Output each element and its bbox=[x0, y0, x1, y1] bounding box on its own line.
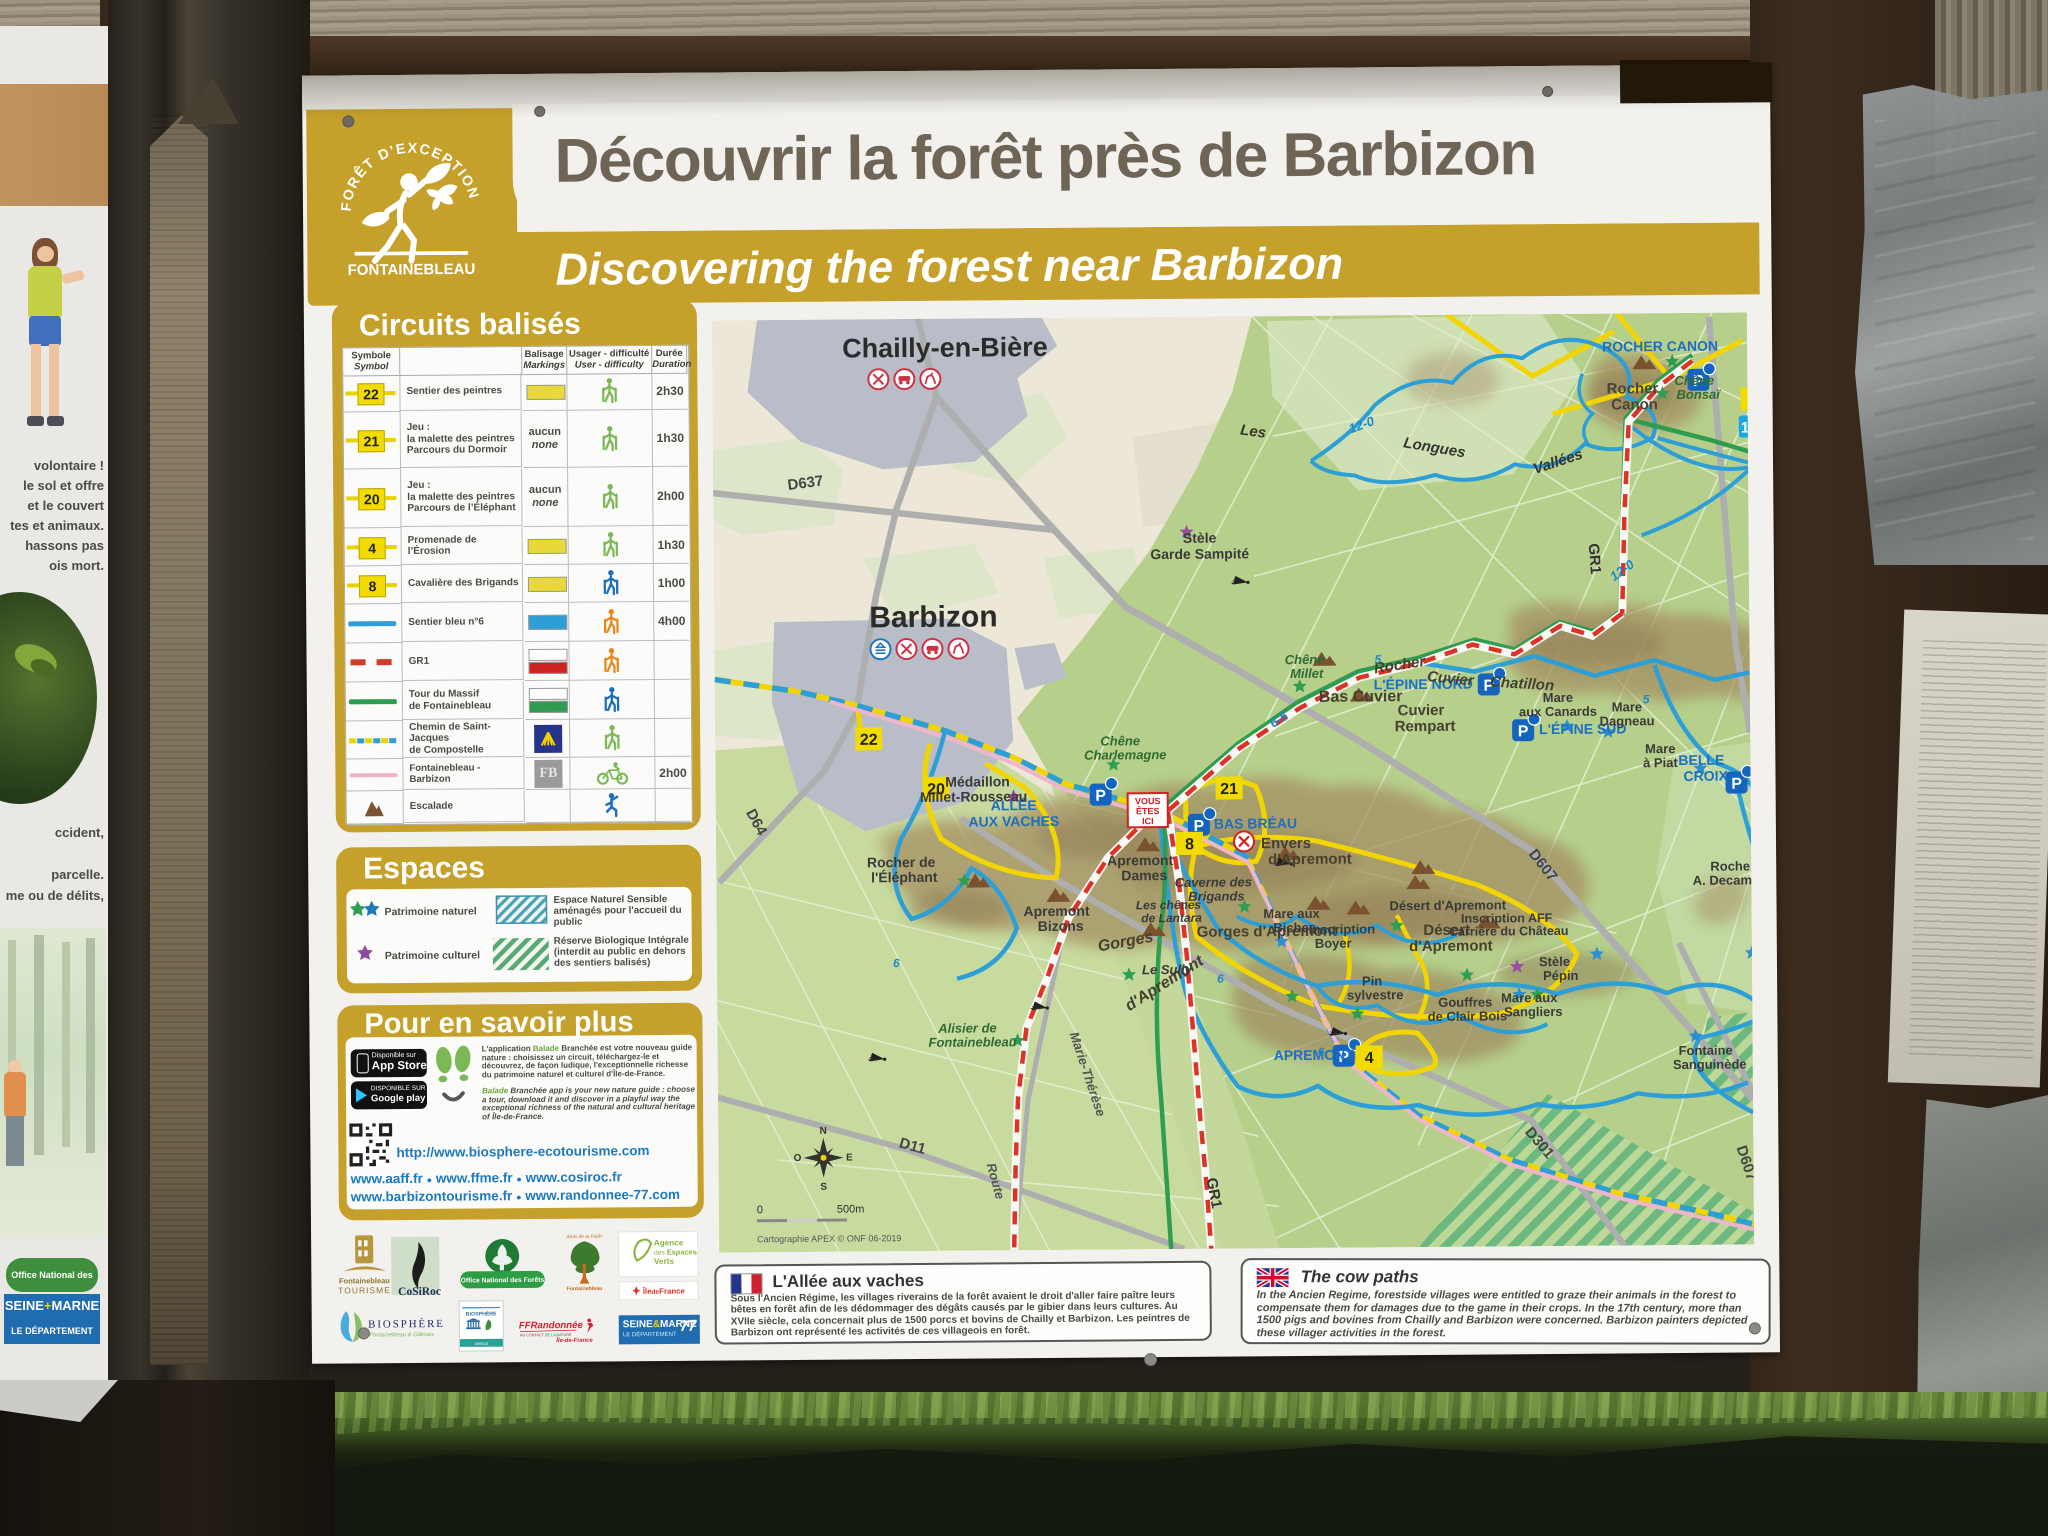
svg-text:22: 22 bbox=[860, 732, 878, 749]
svg-text:5: 5 bbox=[1375, 652, 1382, 666]
svg-text:VOUS: VOUS bbox=[1135, 796, 1161, 806]
svg-text:3: 3 bbox=[1750, 392, 1755, 409]
svg-text:Millet-Rousseau: Millet-Rousseau bbox=[920, 788, 1027, 805]
svg-text:Apremont: Apremont bbox=[1107, 852, 1174, 869]
svg-text:Le Sully: Le Sully bbox=[1142, 962, 1193, 977]
svg-text:Île-de-France: Île-de-France bbox=[556, 1337, 593, 1344]
svg-text:l'Éléphant: l'Éléphant bbox=[871, 869, 938, 886]
svg-text:S: S bbox=[820, 1182, 827, 1193]
svg-text:21: 21 bbox=[1220, 781, 1238, 798]
svg-text:TOURISME: TOURISME bbox=[338, 1285, 391, 1295]
svg-text:Garde Sampité: Garde Sampité bbox=[1150, 545, 1249, 562]
svg-text:CoSiRoc: CoSiRoc bbox=[398, 1286, 441, 1298]
svg-text:Boyer: Boyer bbox=[1315, 936, 1352, 951]
svg-text:0: 0 bbox=[757, 1204, 763, 1216]
svg-text:aux Canards: aux Canards bbox=[1519, 704, 1597, 720]
svg-text:N: N bbox=[820, 1126, 827, 1137]
svg-text:Amis de la Forêt: Amis de la Forêt bbox=[565, 1234, 602, 1240]
svg-text:Envers: Envers bbox=[1261, 835, 1311, 852]
svg-text:Bonsaï: Bonsaï bbox=[1676, 387, 1721, 402]
svg-text:Agence: Agence bbox=[654, 1238, 684, 1247]
svg-text:Carrière du Château: Carrière du Château bbox=[1449, 924, 1569, 939]
svg-text:BIOSPHÈRE: BIOSPHÈRE bbox=[368, 1318, 445, 1331]
svg-text:Chêne: Chêne bbox=[1285, 652, 1325, 667]
svg-text:O: O bbox=[794, 1153, 802, 1164]
svg-text:5: 5 bbox=[1643, 692, 1650, 706]
svg-text:AU CONTACT DE LA NATURE: AU CONTACT DE LA NATURE bbox=[520, 1333, 572, 1337]
svg-text:6: 6 bbox=[893, 956, 900, 970]
svg-text:Les: Les bbox=[1239, 422, 1267, 442]
svg-text:GR1: GR1 bbox=[1585, 543, 1604, 575]
svg-text:Médaillon: Médaillon bbox=[945, 773, 1010, 790]
svg-text:ÎledeFrance: ÎledeFrance bbox=[642, 1287, 686, 1296]
svg-text:Cartographie APEX © ONF 06-201: Cartographie APEX © ONF 06-2019 bbox=[757, 1233, 901, 1244]
svg-text:Dames: Dames bbox=[1121, 867, 1167, 883]
svg-text:500m: 500m bbox=[837, 1203, 865, 1215]
svg-text:6: 6 bbox=[1318, 1045, 1325, 1059]
svg-text:Fontainebleau: Fontainebleau bbox=[928, 1034, 1016, 1050]
svg-text:BIOSPHÈRE: BIOSPHÈRE bbox=[466, 1309, 497, 1317]
svg-text:Charlemagne: Charlemagne bbox=[1084, 747, 1166, 763]
svg-text:Barbizon: Barbizon bbox=[869, 600, 998, 634]
svg-text:Fontainebleau: Fontainebleau bbox=[567, 1286, 603, 1292]
svg-text:ICI: ICI bbox=[1142, 816, 1154, 826]
svg-text:sylvestre: sylvestre bbox=[1347, 987, 1404, 1002]
svg-text:Apremont: Apremont bbox=[1023, 903, 1090, 920]
svg-text:Mare: Mare bbox=[1645, 741, 1675, 756]
svg-text:ROCHER CANON: ROCHER CANON bbox=[1602, 338, 1718, 355]
svg-text:des Espaces: des Espaces bbox=[654, 1247, 697, 1256]
svg-text:Sanguinède: Sanguinède bbox=[1673, 1056, 1747, 1072]
svg-text:Bas Cuvier: Bas Cuvier bbox=[1319, 688, 1403, 706]
svg-text:Stèle: Stèle bbox=[1183, 530, 1217, 546]
svg-text:Millet: Millet bbox=[1290, 666, 1324, 681]
svg-text:Mare: Mare bbox=[1543, 690, 1573, 705]
svg-text:Roche: Roche bbox=[1710, 858, 1750, 873]
svg-text:Inscription: Inscription bbox=[1309, 921, 1376, 937]
svg-text:A. Decamp: A. Decamp bbox=[1693, 872, 1755, 888]
svg-text:Cuvier: Cuvier bbox=[1398, 702, 1445, 719]
svg-text:Chailly-en-Bière: Chailly-en-Bière bbox=[842, 332, 1048, 364]
svg-text:Office National des Forêts: Office National des Forêts bbox=[461, 1277, 545, 1285]
svg-text:AUX VACHES: AUX VACHES bbox=[968, 813, 1059, 830]
svg-text:unesco: unesco bbox=[475, 1341, 489, 1346]
svg-text:de Lantara: de Lantara bbox=[1141, 911, 1202, 925]
svg-text:Canon: Canon bbox=[1611, 396, 1658, 413]
svg-text:Chêne: Chêne bbox=[1674, 373, 1714, 388]
svg-text:6: 6 bbox=[1217, 972, 1224, 986]
svg-text:FFRandonnée: FFRandonnée bbox=[519, 1320, 584, 1332]
svg-text:Bizons: Bizons bbox=[1038, 918, 1084, 934]
svg-text:d'Apremont: d'Apremont bbox=[1268, 851, 1352, 869]
svg-text:P: P bbox=[1095, 788, 1106, 805]
svg-text:FONTAINEBLEAU: FONTAINEBLEAU bbox=[347, 261, 475, 279]
svg-text:de Clair Bois: de Clair Bois bbox=[1428, 1008, 1508, 1024]
svg-text:Fontainebleau & Gâtinais: Fontainebleau & Gâtinais bbox=[370, 1332, 435, 1339]
svg-text:Sangliers: Sangliers bbox=[1504, 1004, 1563, 1019]
svg-text:Rocher: Rocher bbox=[1607, 380, 1659, 397]
svg-text:Pépin: Pépin bbox=[1543, 968, 1579, 983]
svg-text:Rempart: Rempart bbox=[1395, 718, 1456, 735]
svg-text:Dagneau: Dagneau bbox=[1600, 713, 1655, 728]
svg-text:BAS BRÉAU: BAS BRÉAU bbox=[1214, 815, 1297, 832]
svg-text:d'Apremont: d'Apremont bbox=[1409, 937, 1493, 955]
svg-text:8: 8 bbox=[1185, 836, 1194, 853]
svg-text:P: P bbox=[1518, 723, 1529, 740]
svg-text:à Piat: à Piat bbox=[1643, 755, 1678, 770]
svg-text:APREMONT: APREMONT bbox=[1274, 1047, 1355, 1064]
svg-text:4: 4 bbox=[1365, 1050, 1374, 1067]
svg-text:ÊTES: ÊTES bbox=[1136, 805, 1160, 816]
svg-text:CROIX: CROIX bbox=[1683, 768, 1728, 784]
svg-text:Mare: Mare bbox=[1612, 699, 1642, 714]
svg-text:Rocher de: Rocher de bbox=[867, 854, 936, 871]
svg-text:Pin: Pin bbox=[1362, 973, 1382, 988]
svg-text:Verts: Verts bbox=[654, 1257, 674, 1266]
svg-text:BELLE: BELLE bbox=[1678, 752, 1724, 768]
svg-text:P: P bbox=[1731, 776, 1742, 793]
svg-text:Chêne: Chêne bbox=[1100, 733, 1140, 748]
svg-text:E: E bbox=[846, 1152, 853, 1163]
svg-text:Stèle: Stèle bbox=[1539, 954, 1570, 969]
svg-text:12o: 12o bbox=[1741, 419, 1754, 436]
svg-text:Fontainebleau: Fontainebleau bbox=[339, 1276, 390, 1285]
